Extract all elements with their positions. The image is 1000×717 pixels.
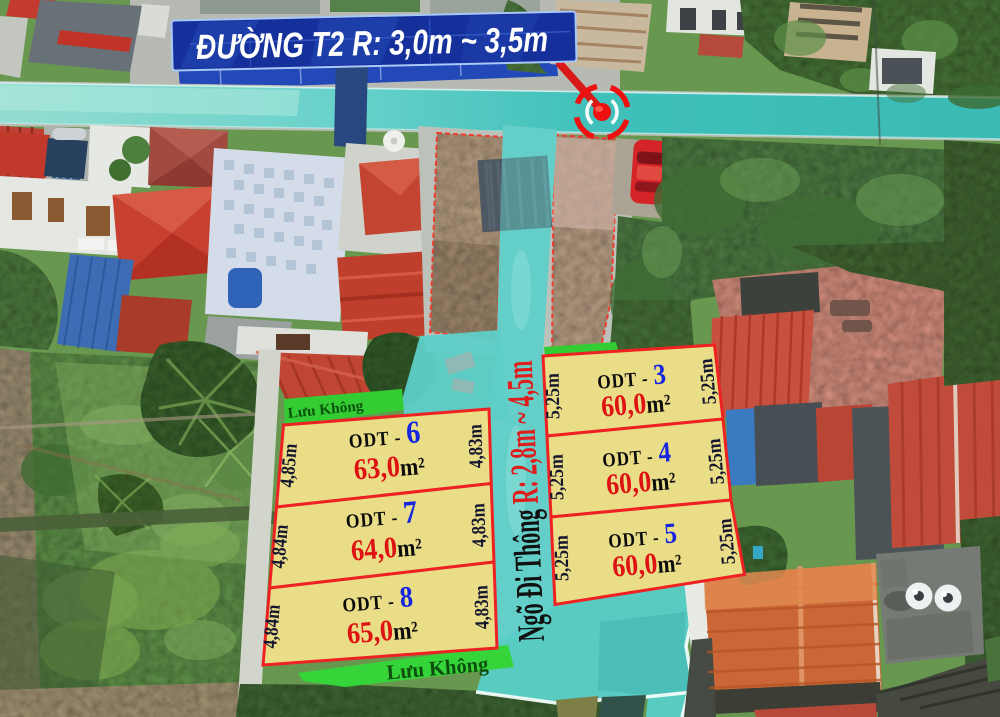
svg-text:5,25m: 5,25m: [714, 517, 740, 565]
svg-text:5,25m: 5,25m: [551, 535, 574, 582]
svg-text:4,83m: 4,83m: [464, 424, 488, 469]
svg-text:5,25m: 5,25m: [546, 454, 569, 501]
svg-text:ĐƯỜNG T2 R: 3,0m ~ 3,5m: ĐƯỜNG T2 R: 3,0m ~ 3,5m: [196, 19, 549, 67]
svg-text:5,25m: 5,25m: [695, 357, 721, 405]
svg-text:4,83m: 4,83m: [470, 585, 494, 630]
svg-text:4,85m: 4,85m: [276, 442, 302, 488]
svg-text:4,84m: 4,84m: [267, 523, 293, 569]
svg-text:4,83m: 4,83m: [467, 503, 491, 548]
svg-text:5,25m: 5,25m: [542, 373, 565, 420]
svg-text:4,84m: 4,84m: [259, 603, 285, 649]
svg-text:5,25m: 5,25m: [703, 437, 729, 485]
